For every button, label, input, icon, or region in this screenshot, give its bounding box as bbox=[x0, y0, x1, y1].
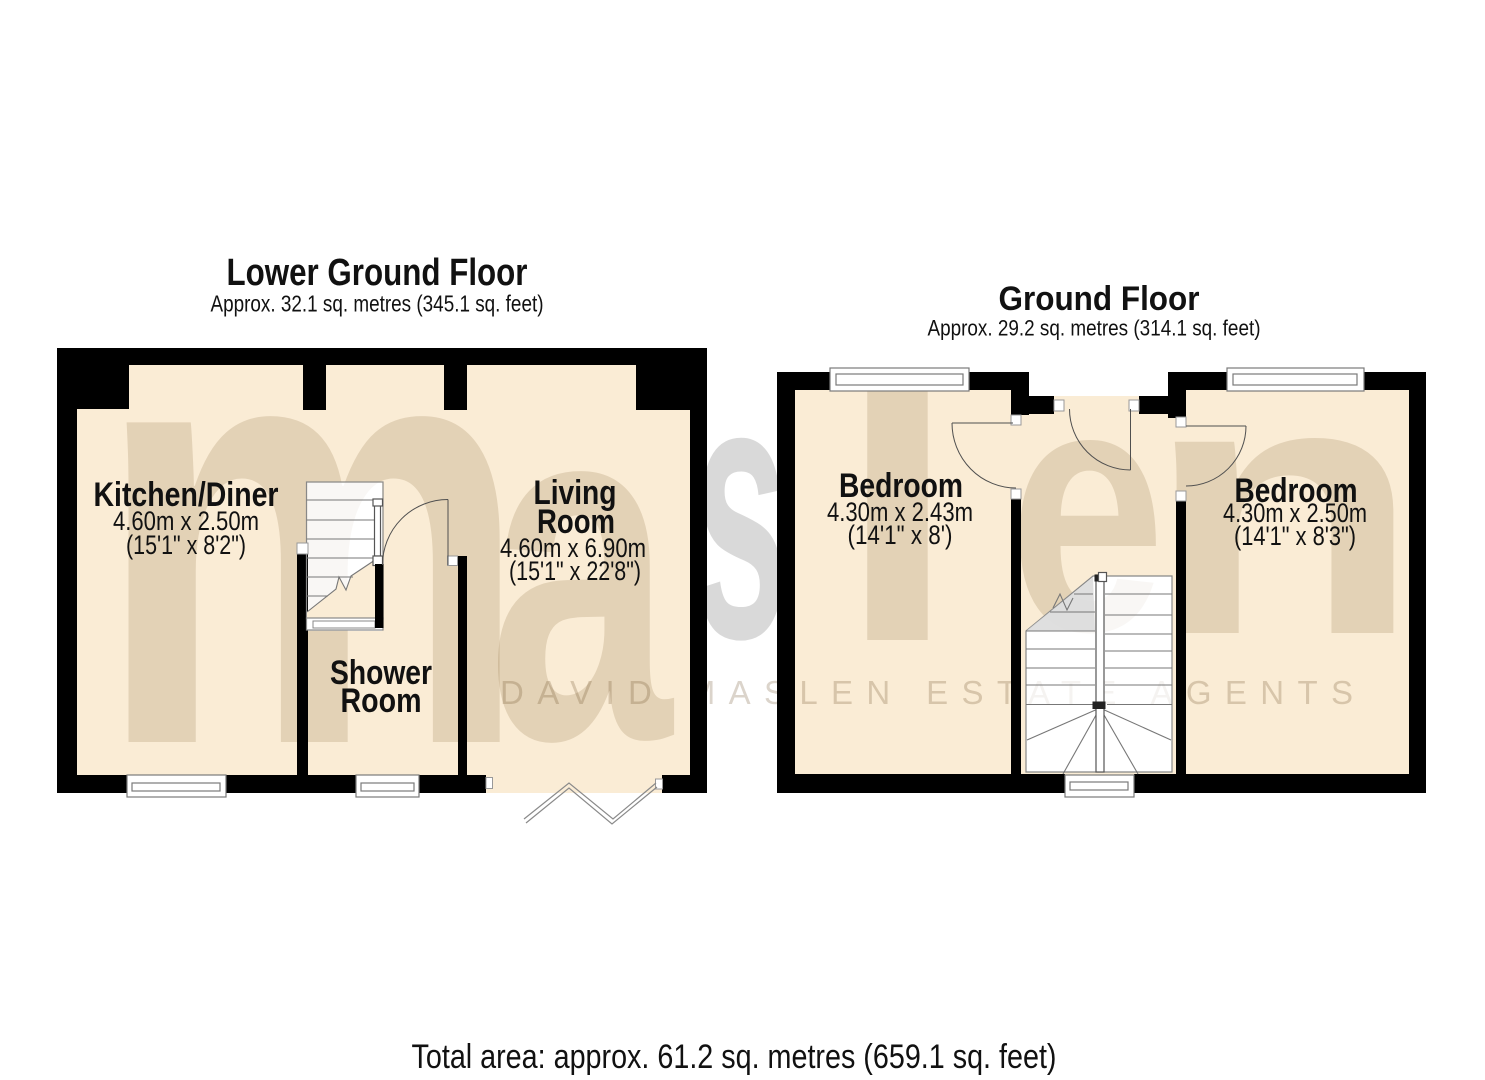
svg-text:DAVID MASLEN ESTATE AGENTS: DAVID MASLEN ESTATE AGENTS bbox=[500, 674, 1353, 711]
svg-text:Ground Floor: Ground Floor bbox=[999, 280, 1200, 318]
svg-text:Approx. 29.2 sq. metres (314.1: Approx. 29.2 sq. metres (314.1 sq. feet) bbox=[928, 316, 1261, 341]
svg-text:(14'1" x 8'): (14'1" x 8') bbox=[848, 520, 953, 550]
svg-text:Total area: approx. 61.2 sq. m: Total area: approx. 61.2 sq. metres (659… bbox=[412, 1038, 1057, 1076]
svg-text:Approx. 32.1 sq. metres (345.1: Approx. 32.1 sq. metres (345.1 sq. feet) bbox=[211, 291, 544, 317]
svg-text:s: s bbox=[694, 303, 789, 717]
svg-text:Lower Ground Floor: Lower Ground Floor bbox=[227, 252, 528, 294]
svg-text:Room: Room bbox=[341, 682, 422, 720]
svg-text:(15'1" x 8'2"): (15'1" x 8'2") bbox=[126, 530, 246, 560]
svg-text:(14'1" x 8'3"): (14'1" x 8'3") bbox=[1234, 521, 1356, 551]
svg-text:(15'1" x 22'8"): (15'1" x 22'8") bbox=[509, 556, 641, 586]
